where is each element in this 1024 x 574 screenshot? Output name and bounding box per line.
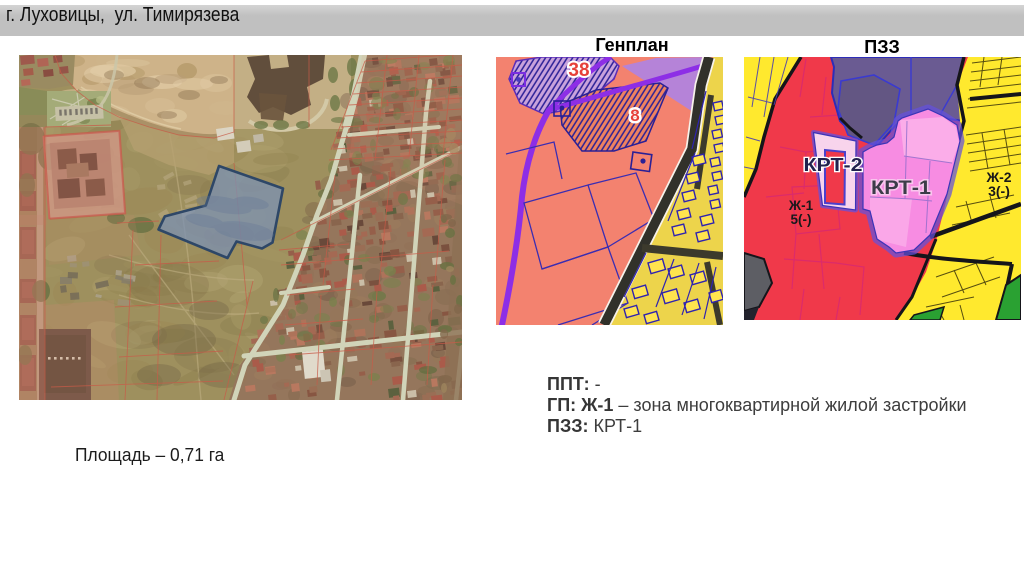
- svg-text:38: 38: [568, 60, 589, 81]
- svg-text:КРТ-2: КРТ-2: [804, 155, 863, 175]
- svg-text:Ж-1: Ж-1: [788, 198, 814, 213]
- svg-text:КРТ-1: КРТ-1: [871, 178, 931, 199]
- svg-text:8: 8: [630, 106, 639, 125]
- svg-text:5(-): 5(-): [791, 212, 812, 227]
- svg-text:3(-): 3(-): [988, 183, 1010, 199]
